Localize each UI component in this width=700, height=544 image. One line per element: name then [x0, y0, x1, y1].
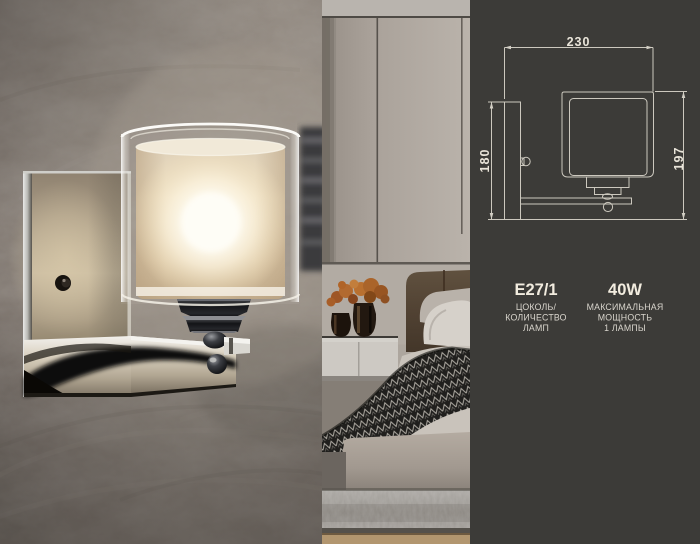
svg-text:180: 180 [478, 149, 492, 173]
svg-text:40W: 40W [608, 281, 642, 299]
svg-text:E27/1: E27/1 [514, 281, 557, 299]
svg-text:1 ЛАМПЫ: 1 ЛАМПЫ [604, 323, 646, 333]
svg-text:КОЛИЧЕСТВО: КОЛИЧЕСТВО [505, 313, 566, 323]
svg-text:ЦОКОЛЬ/: ЦОКОЛЬ/ [516, 302, 557, 312]
svg-text:МОЩНОСТЬ: МОЩНОСТЬ [598, 313, 652, 323]
svg-text:197: 197 [672, 147, 686, 171]
svg-text:ЛАМП: ЛАМП [523, 323, 549, 333]
svg-text:МАКСИМАЛЬНАЯ: МАКСИМАЛЬНАЯ [587, 302, 664, 312]
svg-text:230: 230 [567, 35, 591, 49]
